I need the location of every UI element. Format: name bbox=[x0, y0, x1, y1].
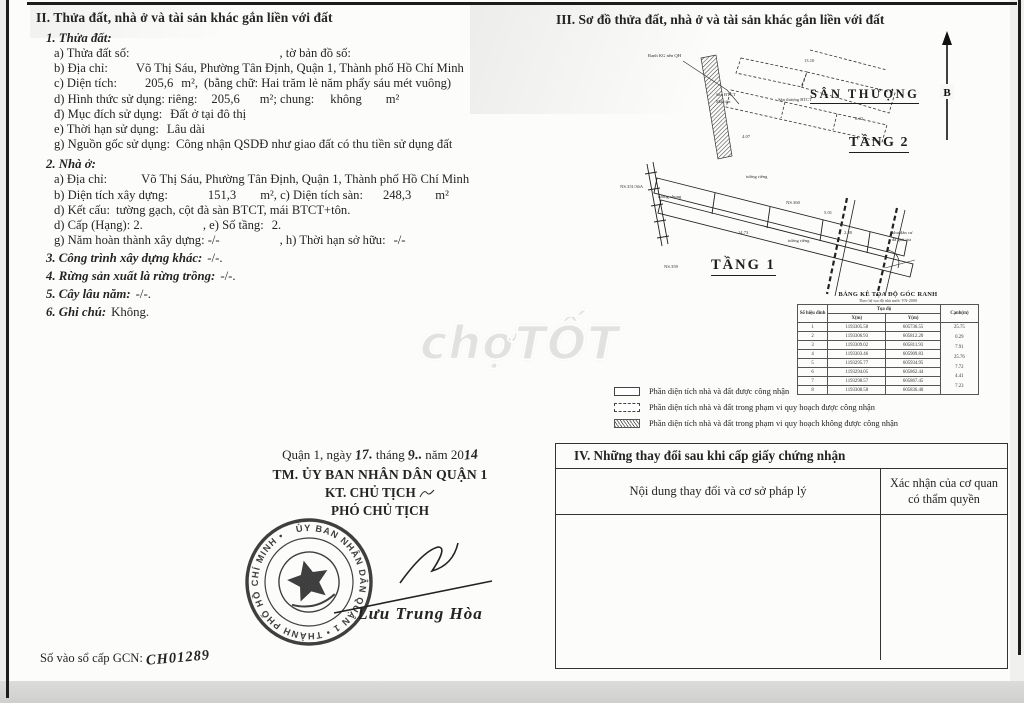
diagram-annotation: NS.359 bbox=[664, 264, 678, 269]
registry-number-line: Số vào sổ cấp GCN: CH01289 bbox=[40, 650, 210, 667]
diagram-annotation: tường chung bbox=[658, 194, 681, 199]
change-content-cell bbox=[556, 515, 881, 660]
col-vertex: Số hiệu đỉnh bbox=[798, 305, 828, 323]
col-coord: Tọa độ bbox=[828, 305, 941, 314]
section-4-title: IV. Những thay đổi sau khi cấp giấy chứn… bbox=[556, 444, 1007, 469]
col-change-content: Nội dung thay đổi và cơ sở pháp lý bbox=[556, 469, 881, 514]
diagram-annotation: NS.360 bbox=[786, 200, 800, 205]
pen-squiggle-icon bbox=[419, 489, 435, 499]
house-structure-line: d) Kết cấu:tường gạch, cột đà sàn BTCT, … bbox=[54, 203, 528, 218]
diagram-annotation: Sàn BTCT bbox=[716, 92, 736, 97]
terrace-label: SÂN THƯỢNG bbox=[810, 87, 919, 104]
coordinate-table: BẢNG KÊ TỌA ĐỘ GÓC RANH Theo hệ tọa độ n… bbox=[797, 291, 979, 395]
coordinate-table-subtitle: Theo hệ tọa độ nhà nước VN-2000 bbox=[797, 298, 979, 303]
street-lines bbox=[827, 198, 915, 296]
diagram-legend: Phần diện tích nhà và đất được công nhận… bbox=[614, 383, 1014, 431]
diagram-annotation: Mái tôn bbox=[716, 99, 730, 104]
col-x: X(m) bbox=[828, 314, 886, 323]
diagram-annotation: 2.20 bbox=[844, 230, 852, 235]
land-useform-line: d) Hình thức sử dụng: riêng:205,6m²; chu… bbox=[54, 92, 528, 107]
col-authority-confirm: Xác nhận của cơ quan có thẩm quyền bbox=[881, 469, 1007, 514]
border-line-right bbox=[1018, 0, 1021, 655]
col-edge: Cạnh(m) bbox=[940, 305, 978, 323]
floor1-outline bbox=[645, 162, 913, 277]
authority-line: TM. ỦY BAN NHÂN DÂN QUẬN 1 bbox=[225, 467, 535, 483]
forest-line: 4. Rừng sản xuất là rừng trồng:-/-. bbox=[46, 269, 528, 284]
signature-block: Quận 1, ngày 17. tháng 9.. năm 2014 TM. … bbox=[225, 447, 535, 519]
note-line: 6. Ghi chú:Không. bbox=[46, 305, 528, 320]
handwritten-year: 14 bbox=[463, 447, 478, 464]
legend-item: Phần diện tích nhà và đất trong phạm vi … bbox=[614, 399, 1014, 415]
diagram-annotation: 13.10 bbox=[804, 58, 814, 63]
handwritten-month: 9.. bbox=[407, 447, 422, 464]
border-line-left bbox=[6, 0, 9, 698]
floor2-label: TẦNG 2 bbox=[849, 135, 909, 153]
diagram-annotation: Sân thượng BTCT bbox=[778, 97, 812, 102]
signer-name: Lưu Trung Hòa bbox=[320, 604, 520, 624]
diagram-annotation: 5.01 bbox=[824, 210, 832, 215]
land-term-line: e) Thời hạn sử dụng:Lâu dài bbox=[54, 122, 528, 137]
cadastral-diagram: B bbox=[555, 28, 1017, 296]
section-3-title: III. Sơ đồ thửa đất, nhà ở và tài sản kh… bbox=[556, 12, 1016, 28]
land-address-line: b) Địa chỉ:Võ Thị Sáu, Phường Tân Định, … bbox=[54, 61, 528, 76]
land-certificate-page: chợTỐT II. Thửa đất, nhà ở và tài sản kh… bbox=[0, 0, 1024, 703]
legend-item: Phần diện tích nhà và đất trong phạm vi … bbox=[614, 415, 1014, 431]
legend-item: Phần diện tích nhà và đất được công nhận bbox=[614, 383, 1014, 399]
pho-chu-tich-line: PHÓ CHỦ TỊCH bbox=[225, 503, 535, 519]
land-area-line: c) Diện tích:205,6m²,(bằng chữ: Hai trăm… bbox=[54, 76, 528, 91]
diagram-annotation: khu dân cư bbox=[892, 230, 912, 235]
floor1-label: TẦNG 1 bbox=[711, 257, 776, 276]
house-year-line: g) Năm hoàn thành xây dựng: -/-, h) Thời… bbox=[54, 233, 528, 248]
chotot-watermark: chợTỐT bbox=[420, 316, 619, 370]
section-2: II. Thửa đất, nhà ở và tài sản khác gắn … bbox=[36, 10, 528, 320]
section-4-table: IV. Những thay đổi sau khi cấp giấy chứn… bbox=[555, 443, 1008, 669]
diagram-annotation: Ranh KG nền QH bbox=[648, 53, 681, 58]
coordinate-table-title: BẢNG KÊ TỌA ĐỘ GÓC RANH bbox=[797, 291, 979, 298]
legend-swatch-solid bbox=[614, 387, 640, 396]
section-2-title: II. Thửa đất, nhà ở và tài sản khác gắn … bbox=[36, 10, 528, 26]
legend-swatch-hatched bbox=[614, 419, 640, 428]
diagram-annotation: 4.07 bbox=[742, 134, 750, 139]
authority-confirm-cell bbox=[881, 515, 1007, 660]
diagram-annotation: 14.73 bbox=[738, 230, 748, 235]
house-heading: 2. Nhà ở: bbox=[46, 157, 528, 172]
handwritten-gcn-number: CH01289 bbox=[145, 647, 210, 670]
land-heading: 1. Thửa đất: bbox=[46, 31, 528, 46]
legend-swatch-dashed bbox=[614, 403, 640, 412]
coord-row: 11193305.58605736.55 25.75 0.29 7.91 25.… bbox=[798, 323, 979, 332]
diagram-annotation: NS.351/36A bbox=[620, 184, 643, 189]
col-y: Y(m) bbox=[886, 314, 940, 323]
land-parcel-line: a) Thửa đất số:, tờ bản đồ số: bbox=[54, 46, 528, 61]
border-line-top bbox=[27, 2, 1017, 5]
house-address-line: a) Địa chỉ:Võ Thị Sáu, Phường Tân Định, … bbox=[54, 172, 528, 187]
land-purpose-line: đ) Mục đích sử dụng:Đất ở tại đô thị bbox=[54, 107, 528, 122]
kt-chu-tich-line: KT. CHỦ TỊCH bbox=[225, 485, 535, 501]
diagram-annotation: đã giải tỏa bbox=[892, 237, 911, 242]
diagram-annotation: tường riêng bbox=[746, 174, 767, 179]
north-arrow-icon: B bbox=[940, 31, 954, 140]
other-works-line: 3. Công trình xây dựng khác:-/-. bbox=[46, 251, 528, 266]
place-date-line: Quận 1, ngày 17. tháng 9.. năm 2014 bbox=[225, 447, 535, 464]
diagram-annotation: 8.42 bbox=[855, 116, 863, 121]
land-origin-line: g) Nguồn gốc sử dụng:Công nhận QSDĐ như … bbox=[54, 137, 528, 152]
section-4-header-row: Nội dung thay đổi và cơ sở pháp lý Xác n… bbox=[556, 469, 1007, 515]
house-area-line: b) Diện tích xây dựng:151,3m², c) Diện t… bbox=[54, 188, 528, 203]
handwritten-day: 17. bbox=[354, 447, 373, 464]
diagram-annotation: tường riêng bbox=[788, 238, 809, 243]
house-grade-line: d) Cấp (Hạng): 2., e) Số tầng:2. bbox=[54, 218, 528, 233]
section-4-body bbox=[556, 515, 1007, 660]
perennial-line: 5. Cây lâu năm:-/-. bbox=[46, 287, 528, 302]
svg-text:B: B bbox=[943, 87, 951, 99]
scan-shading bbox=[0, 681, 1024, 703]
